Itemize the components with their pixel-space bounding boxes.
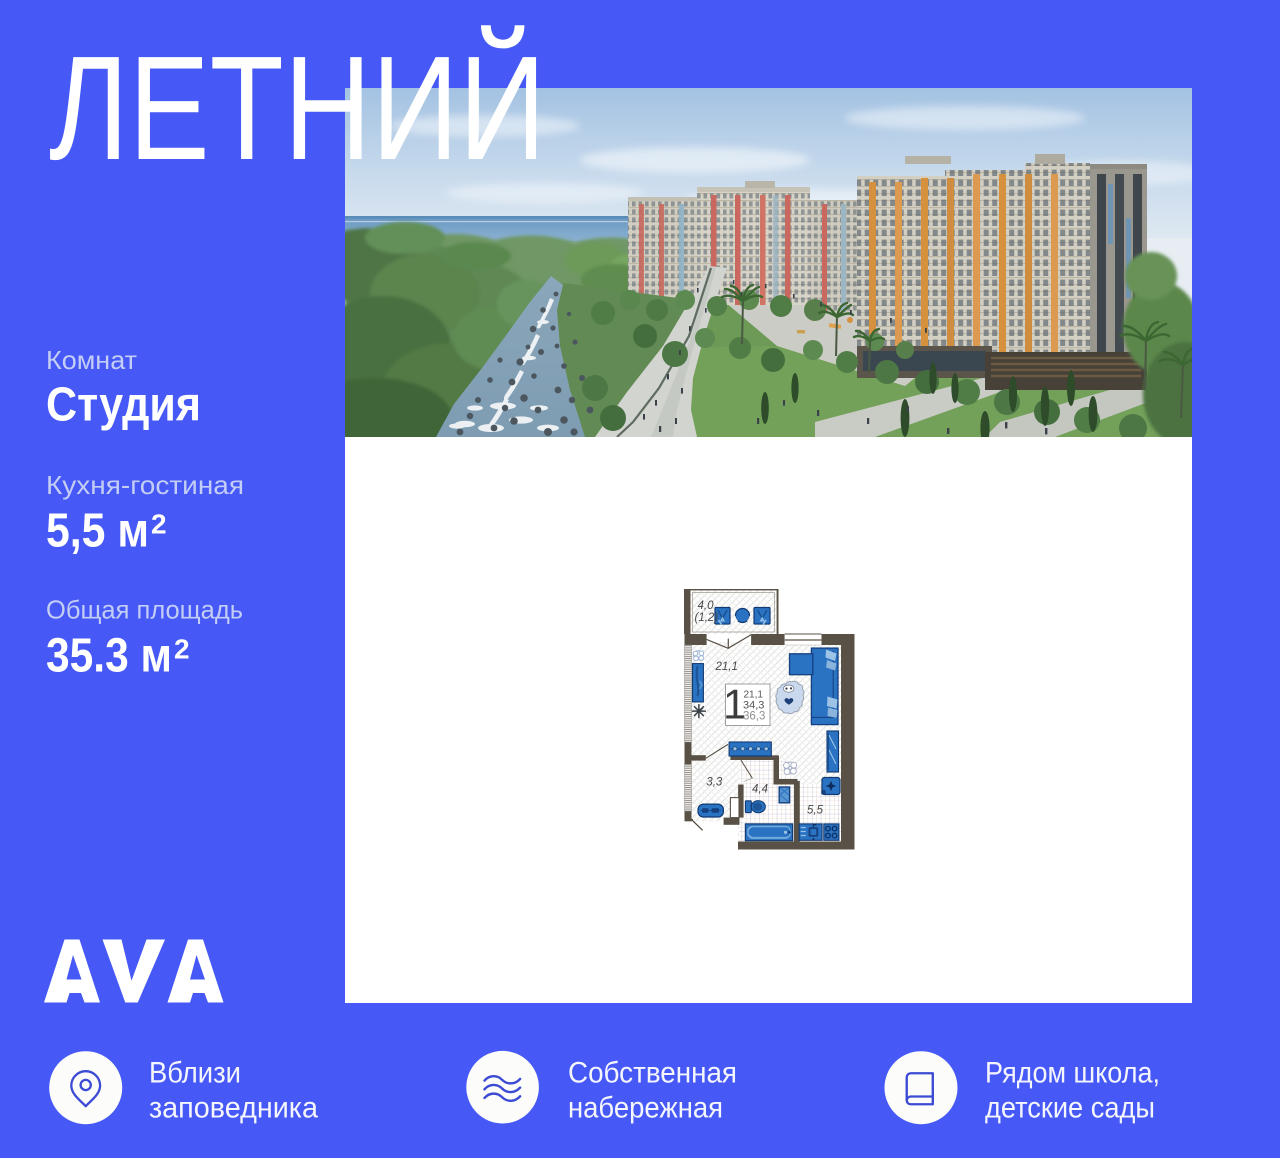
svg-text:2: 2	[174, 633, 190, 664]
svg-text:3,3: 3,3	[706, 776, 723, 788]
svg-text:детские сады: детские сады	[985, 1091, 1155, 1124]
svg-text:Комнат: Комнат	[46, 345, 137, 375]
svg-text:Студия: Студия	[46, 378, 201, 431]
svg-text:4,0: 4,0	[698, 600, 715, 612]
svg-text:5,5 м: 5,5 м	[46, 504, 149, 557]
svg-text:34,3: 34,3	[743, 699, 764, 711]
svg-text:набережная: набережная	[568, 1091, 723, 1124]
svg-text:5,5: 5,5	[807, 804, 824, 816]
svg-text:4,4: 4,4	[752, 784, 768, 796]
svg-text:Рядом школа,: Рядом школа,	[985, 1057, 1160, 1090]
svg-text:заповедника: заповедника	[149, 1091, 318, 1124]
svg-text:Общая площадь: Общая площадь	[46, 594, 243, 624]
svg-text:Собственная: Собственная	[568, 1057, 737, 1090]
svg-text:36,3: 36,3	[743, 711, 765, 723]
svg-text:21,1: 21,1	[715, 661, 738, 673]
svg-text:(1,2): (1,2)	[695, 612, 719, 624]
svg-text:35.3 м: 35.3 м	[46, 629, 172, 682]
svg-text:Вблизи: Вблизи	[149, 1057, 241, 1090]
svg-text:2: 2	[151, 509, 167, 540]
svg-text:ЛЕТНИЙ: ЛЕТНИЙ	[49, 25, 546, 191]
svg-text:Кухня-гостиная: Кухня-гостиная	[46, 470, 244, 500]
